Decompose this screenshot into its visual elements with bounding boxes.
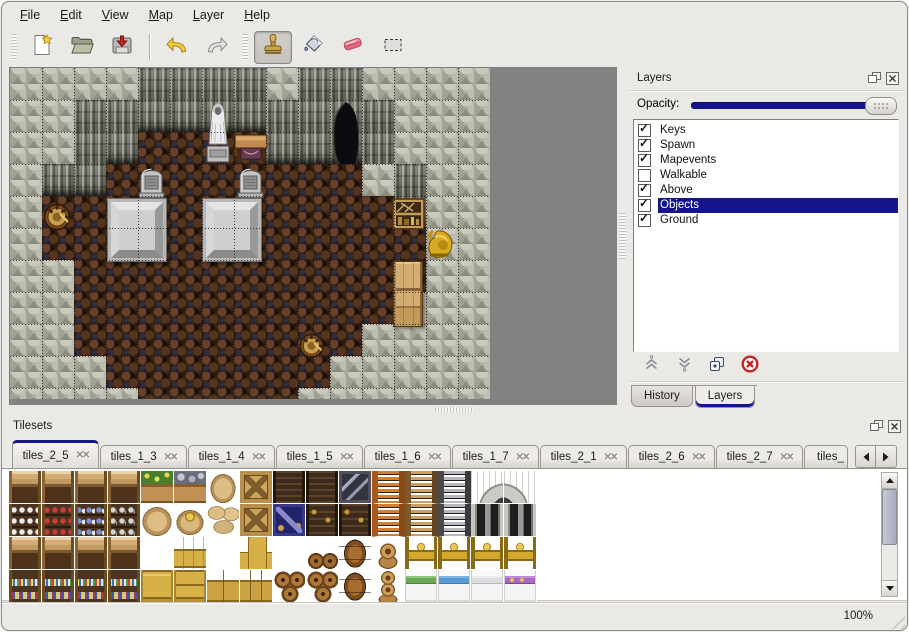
map-tile-dirt-floor [298,196,330,228]
tileset-tile-ladder_g[interactable] [438,504,471,537]
tileset-tile-shelf_blue[interactable] [75,504,108,537]
map-tile-cliff-face [106,100,138,132]
map-tile-dirt-floor [362,292,394,324]
layer-row-walkable[interactable]: Walkable [634,168,898,183]
tileset-tile-bed_head[interactable] [438,537,471,570]
map-tile-rock-wall [10,292,42,324]
map-tile-dirt-floor [234,292,266,324]
map-tile-rock-wall [42,100,74,132]
grid-line [202,68,203,399]
tilesets-panel-title: Tilesets [13,420,52,432]
lower-layer-icon [676,355,693,377]
map-tile-cliff-face [170,68,202,100]
map-tile-rock-wall [10,164,42,196]
grid-line [106,68,107,399]
slider-handle-texture [873,102,889,110]
tileset-tab-tiles_1_7[interactable]: tiles_1_7✕✕ [452,445,539,468]
tileset-tile-shelf_top[interactable] [108,471,141,504]
tileset-tab-tiles_2_1[interactable]: tiles_2_1✕✕ [540,445,627,468]
map-tile-cliff-face [106,132,138,165]
tileset-tile-door_r[interactable] [504,504,537,537]
map-tile-dirt-floor [330,196,362,228]
map-tile-dirt-floor [138,324,170,356]
eraser-button[interactable] [334,31,372,64]
layers-panel-titlebar: Layers [629,67,905,91]
tileset-tile-dark_shelf[interactable] [306,471,339,504]
map-tile-rock-wall [10,388,42,399]
map-tile-rock-wall [42,292,74,324]
toolbar-separator [149,34,150,60]
layer-name: Keys [658,123,898,138]
float-panel-icon[interactable] [868,72,882,85]
layer-row-above[interactable]: ✓Above [634,183,898,198]
tileset-tile-shelf_top[interactable] [42,537,75,570]
vertical-splitter[interactable] [617,67,629,405]
map-tile-dirt-floor [170,292,202,324]
tileset-tile-shelf_jar[interactable] [108,504,141,537]
tileset-tile-barrel_stack[interactable] [306,570,339,603]
map-tile-rock-wall [426,196,458,228]
stamp-tool-icon [261,33,285,62]
tileset-tile-empty[interactable] [207,537,240,570]
map-tile-rock-wall [10,68,42,100]
grid-line [10,324,490,325]
grid-line [10,100,490,101]
tileset-tab-label: tiles_1_5 [287,451,333,463]
tileset-tile-pots[interactable] [372,570,405,603]
grid-line [42,68,43,399]
opacity-slider-handle[interactable] [865,97,897,115]
opacity-row: Opacity: [629,94,905,116]
tileset-tab-label: tiles_ [817,451,844,463]
map-tile-dirt-floor [330,292,362,324]
grid-line [362,68,363,399]
map-tile-rock-wall [106,388,138,399]
tileset-tile-shelf_top[interactable] [42,471,75,504]
map-tile-dirt-floor [394,228,426,260]
grid-line [10,228,490,229]
layer-name: Spawn [658,138,898,153]
menu-help[interactable]: Help [234,5,280,25]
map-tile-rock-wall [394,100,426,132]
map-tile-rock-wall [394,388,426,399]
tileset-tile-ladder_o[interactable] [372,471,405,504]
select-button[interactable] [374,31,412,64]
map-tile-dirt-floor [234,356,266,388]
stamp-button[interactable] [254,31,292,64]
tileset-tile-ladder_b[interactable] [405,471,438,504]
tileset-tile-plant_crate[interactable] [141,471,174,504]
tileset-tile-shelf_bot[interactable] [108,570,141,603]
map-tile-cliff-face [138,100,170,133]
map-tile-dirt-floor [74,324,106,356]
map-tile-rock-wall [458,292,490,324]
map-tile-dirt-floor [234,324,266,356]
grid-line [266,68,267,399]
tileset-tile-metal_crate[interactable] [339,471,372,504]
tileset-tile-crate_x[interactable] [240,504,273,537]
tileset-tile-shelf_top[interactable] [108,537,141,570]
tileset-tab-tiles_2_5[interactable]: tiles_2_5✕✕ [12,440,99,468]
splitter-grip [619,213,626,259]
tileset-tile-pot[interactable] [372,537,405,570]
tileset-content [2,468,907,601]
open-folder-icon [70,33,94,62]
tileset-tab-label: tiles_1_7 [463,451,509,463]
map-tile-cliff-face [138,68,170,100]
entrance-sprite [328,101,362,165]
map-tile-dirt-floor [362,260,394,292]
tileset-tile-arch_l[interactable] [471,471,504,504]
map-tile-rock-wall [10,132,42,164]
map-canvas[interactable] [10,68,490,399]
map-tile-dirt-floor [330,260,362,292]
map-tile-dirt-floor [170,388,202,399]
map-tile-dirt-floor [74,228,106,260]
map-tile-rock-wall [426,164,458,196]
duplicate-layer-button[interactable] [706,355,728,377]
tileset-tile-dark_shelf2[interactable] [339,504,372,537]
tileset-tile-ladder_o[interactable] [372,504,405,537]
map-tile-dirt-floor [362,228,394,260]
layer-actions-toolbar [629,351,905,382]
map-tile-rock-wall [42,132,74,164]
grid-line [10,260,490,261]
slab-sprite [202,198,262,262]
menu-view[interactable]: View [92,5,139,25]
tab-scroll-buttons [855,445,897,468]
tileset-tile-crate_pair[interactable] [207,570,240,603]
map-tile-dirt-floor [298,228,330,260]
tileset-tab-tiles_1_3[interactable]: tiles_1_3✕✕ [100,445,187,468]
map-tile-rock-wall [42,388,74,399]
close-tab-icon[interactable]: ✕✕ [428,452,441,463]
close-tab-icon[interactable]: ✕✕ [76,450,89,461]
layer-visibility-checkbox[interactable]: ✓ [638,214,651,227]
tileset-tile-crate_tri[interactable] [240,570,273,603]
map-tile-cliff-face [362,132,394,164]
tileset-tile-barrel[interactable] [339,570,372,603]
raise-layer-icon [643,355,660,377]
close-tab-icon[interactable]: ✕✕ [604,452,617,463]
layer-row-ground[interactable]: ✓Ground [634,213,898,228]
map-tile-dirt-floor [74,260,106,292]
toolbar-grip[interactable] [11,34,17,60]
map-tile-rock-wall [426,100,458,132]
close-tab-icon[interactable]: ✕✕ [252,452,265,463]
tileset-tile-ladder_g[interactable] [438,471,471,504]
menu-bar: FileEditViewMapLayerHelp [2,2,907,28]
zoom-level: 100% [844,610,873,622]
map-tile-dirt-floor [106,324,138,356]
map-tile-dirt-floor [42,228,74,260]
tileset-tile-crate_x[interactable] [240,471,273,504]
tileset-tile-ore_crate[interactable] [174,471,207,504]
map-tile-rock-wall [394,68,426,100]
layer-row-keys[interactable]: ✓Keys [634,123,898,138]
tileset-tile-sack_big[interactable] [141,504,174,537]
map-tile-rock-wall [10,324,42,356]
tileset-tile-shelf_top[interactable] [75,471,108,504]
dock-tab-bar: HistoryLayers [631,385,757,412]
tileset-tile-barrel_pair[interactable] [306,537,339,570]
layer-name: Above [658,183,898,198]
raise-layer-button[interactable] [640,355,662,377]
cabinet-sprite [393,261,423,327]
map-tile-dirt-floor [202,388,234,399]
gravestone-sprite [138,165,165,198]
map-tile-dirt-floor [298,164,330,196]
map-tile-cliff-face [298,132,330,165]
map-tile-rock-wall [458,100,490,132]
map-tile-rock-wall [42,324,74,356]
map-tile-dirt-floor [266,292,298,324]
splitter-grip [435,407,473,413]
map-tile-dirt-floor [170,324,202,356]
close-tab-icon[interactable]: ✕✕ [516,452,529,463]
open-button[interactable] [63,31,101,64]
statue-sprite [202,102,234,164]
tileset-tab-tiles[interactable]: tiles_ [804,445,848,468]
tileset-tile-barrel_stack[interactable] [273,570,306,603]
map-tile-dirt-floor [202,292,234,324]
layer-name: Walkable [658,168,898,183]
map-tile-rock-wall [426,292,458,324]
scroll-tabs-right-button[interactable] [876,445,897,468]
map-tile-rock-wall [394,132,426,164]
map-tile-rock-wall [458,132,490,164]
tileset-tile-bed_head[interactable] [405,537,438,570]
tileset-tile-shelf_bot[interactable] [42,570,75,603]
tileset-tile-bed_head[interactable] [504,537,537,570]
tileset-tile-empty[interactable] [141,537,174,570]
map-tile-rock-wall [266,68,298,100]
shelf-sprite [392,198,425,230]
map-tile-rock-wall [394,324,426,356]
map-tile-rock-wall [458,196,490,228]
save-icon [110,33,134,62]
tilesets-panel-titlebar: Tilesets [2,415,907,439]
tileset-tab-label: tiles_1_4 [199,451,245,463]
tileset-tile-shelf_red[interactable] [42,504,75,537]
tileset-tile-crate_y2[interactable] [174,570,207,603]
map-tile-cliff-face [362,100,394,132]
map-tile-cliff-face [234,68,266,100]
map-tile-rock-wall [362,68,394,100]
map-tile-dirt-floor [138,292,170,324]
map-tile-rock-wall [330,388,362,399]
tileset-tab-tiles_1_4[interactable]: tiles_1_4✕✕ [188,445,275,468]
scrollbar-thumb[interactable] [882,489,897,545]
layer-visibility-checkbox[interactable]: ✓ [638,154,651,167]
redo-icon [205,33,229,62]
tileset-tile-barrel[interactable] [339,537,372,570]
map-tile-dirt-floor [298,260,330,292]
scroll-down-icon[interactable] [882,580,897,596]
tileset-tile-bed_p[interactable] [504,570,537,603]
idol-sprite [425,228,455,260]
map-tile-rock-wall [426,260,458,292]
scroll-up-icon[interactable] [882,473,897,489]
tileset-scrollbar[interactable] [881,472,898,597]
lower-layer-button[interactable] [673,355,695,377]
tab-layers[interactable]: Layers [695,386,756,408]
grid-line [138,68,139,399]
tileset-tile-door_l[interactable] [471,504,504,537]
layer-name: Mapevents [658,153,898,168]
menu-map[interactable]: Map [139,5,183,25]
tileset-tile-shelf_top[interactable] [9,537,42,570]
tileset-tile-shelf_top[interactable] [75,537,108,570]
redo-button[interactable] [198,31,236,64]
map-tile-dirt-floor [170,228,202,260]
map-tile-dirt-floor [202,164,234,196]
tileset-tile-crate_blue[interactable] [273,504,306,537]
tileset-tile-bed_head[interactable] [471,537,504,570]
map-tile-dirt-floor [138,260,170,292]
table-sprite [234,134,268,166]
gravestone-sprite [237,165,264,198]
menu-file[interactable]: File [10,5,50,25]
grid-line [10,356,490,357]
tileset-tab-tiles_2_6[interactable]: tiles_2_6✕✕ [628,445,715,468]
slab-sprite [107,198,167,262]
layer-row-objects[interactable]: ✓Objects [634,198,898,213]
delete-layer-icon [741,355,759,378]
map-tile-rock-wall [42,260,74,292]
tileset-tile-arch_r[interactable] [504,471,537,504]
scroll-tabs-left-button[interactable] [855,445,876,468]
tileset-tab-tiles_1_6[interactable]: tiles_1_6✕✕ [364,445,451,468]
menu-edit[interactable]: Edit [50,5,92,25]
map-tile-dirt-floor [106,356,138,388]
map-tile-dirt-floor [266,196,298,228]
toolbar-grip[interactable] [242,34,248,60]
grid-line [74,68,75,399]
undo-icon [165,33,189,62]
opacity-slider[interactable] [691,102,895,109]
tileset-tab-tiles_2_7[interactable]: tiles_2_7✕✕ [716,445,803,468]
map-tile-rock-wall [10,228,42,260]
close-panel-icon[interactable] [886,72,899,85]
duplicate-layer-icon [708,355,726,378]
map-tile-rock-wall [458,228,490,260]
map-tile-dirt-floor [266,388,298,399]
layer-row-spawn[interactable]: ✓Spawn [634,138,898,153]
tileset-tab-label: tiles_2_5 [23,450,69,462]
close-tab-icon[interactable]: ✕✕ [340,452,353,463]
map-tile-cliff-face [266,132,298,165]
tileset-tile-ladder_b[interactable] [405,504,438,537]
resize-grip[interactable] [888,612,905,629]
tileset-tile-shelf_top[interactable] [9,471,42,504]
map-tile-rock-wall [74,388,106,399]
tileset-tile-crate_top[interactable] [174,537,207,570]
tileset-tile-sack_pile[interactable] [207,504,240,537]
map-tile-rock-wall [426,356,458,388]
close-panel-icon[interactable] [888,420,901,433]
new-button[interactable] [23,31,61,64]
map-tile-dirt-floor [202,356,234,388]
tileset-tile-empty[interactable] [273,537,306,570]
select-tool-icon [381,33,405,62]
map-tile-dirt-floor [266,260,298,292]
close-tab-icon[interactable]: ✕✕ [164,452,177,463]
undo-button[interactable] [158,31,196,64]
grid-line [10,388,490,389]
map-tile-dirt-floor [106,164,138,196]
grid-line [458,68,459,399]
menu-layer[interactable]: Layer [183,5,234,25]
application-window: FileEditViewMapLayerHelp Layers Opacity:… [1,1,908,631]
tileset-tile-shelf_dish[interactable] [9,504,42,537]
map-tile-cliff-face [74,132,106,164]
tab-history[interactable]: History [631,386,693,407]
layer-list: ✓Keys✓Spawn✓MapeventsWalkable✓Above✓Obje… [633,119,899,352]
tileset-tile-dark_shelf[interactable] [273,471,306,504]
map-tile-rock-wall [458,68,490,100]
map-tile-dirt-floor [170,356,202,388]
grid-line [10,164,490,165]
layer-name: Objects [658,198,898,213]
map-viewport[interactable] [9,67,619,407]
tileset-tab-label: tiles_1_6 [375,451,421,463]
tileset-tile-bed_g[interactable] [405,570,438,603]
map-tile-rock-wall [10,100,42,132]
grid-line [426,68,427,399]
tileset-tab-bar: tiles_2_5✕✕tiles_1_3✕✕tiles_1_4✕✕tiles_1… [12,439,851,468]
map-tile-rock-wall [362,388,394,399]
map-tile-cliff-face [202,68,234,100]
map-tile-cliff-face [298,68,330,100]
tileset-tile-crate_y[interactable] [141,570,174,603]
map-tile-rock-wall [426,132,458,164]
layer-name: Ground [658,213,898,228]
tileset-tile-shelf_bot[interactable] [75,570,108,603]
grid-line [298,68,299,399]
tileset-tab-tiles_1_5[interactable]: tiles_1_5✕✕ [276,445,363,468]
save-button[interactable] [103,31,141,64]
close-tab-icon[interactable]: ✕✕ [692,452,705,463]
map-tile-rock-wall [298,388,330,399]
tileset-tile-bed_w[interactable] [471,570,504,603]
layer-row-mapevents[interactable]: ✓Mapevents [634,153,898,168]
map-tile-rock-wall [42,356,74,388]
map-tile-cliff-face [42,164,74,197]
map-tile-rock-wall [458,388,490,399]
map-tile-rock-wall [458,164,490,196]
map-tile-dirt-floor [298,292,330,324]
tileset-tab-label: tiles_2_6 [639,451,685,463]
float-panel-icon[interactable] [870,420,884,433]
layers-panel: Layers Opacity: ✓Keys✓Spawn✓MapeventsWal… [629,67,905,414]
tileset-tile-bed_b[interactable] [438,570,471,603]
tileset-tile-shelf_bot[interactable] [9,570,42,603]
map-tile-dirt-floor [330,324,362,356]
fill-button[interactable] [294,31,332,64]
close-tab-icon[interactable]: ✕✕ [780,452,793,463]
tileset-tile-sack[interactable] [207,471,240,504]
tileset-tile-crate_sm[interactable] [240,537,273,570]
tileset-tab-label: tiles_2_1 [551,451,597,463]
grid-line [170,68,171,399]
map-tile-dirt-floor [234,388,266,399]
delete-layer-button[interactable] [739,355,761,377]
tileset-tile-sack_open[interactable] [174,504,207,537]
map-tile-dirt-floor [170,196,202,228]
tileset-tile-dark_shelf2[interactable] [306,504,339,537]
grid-line [10,132,490,133]
